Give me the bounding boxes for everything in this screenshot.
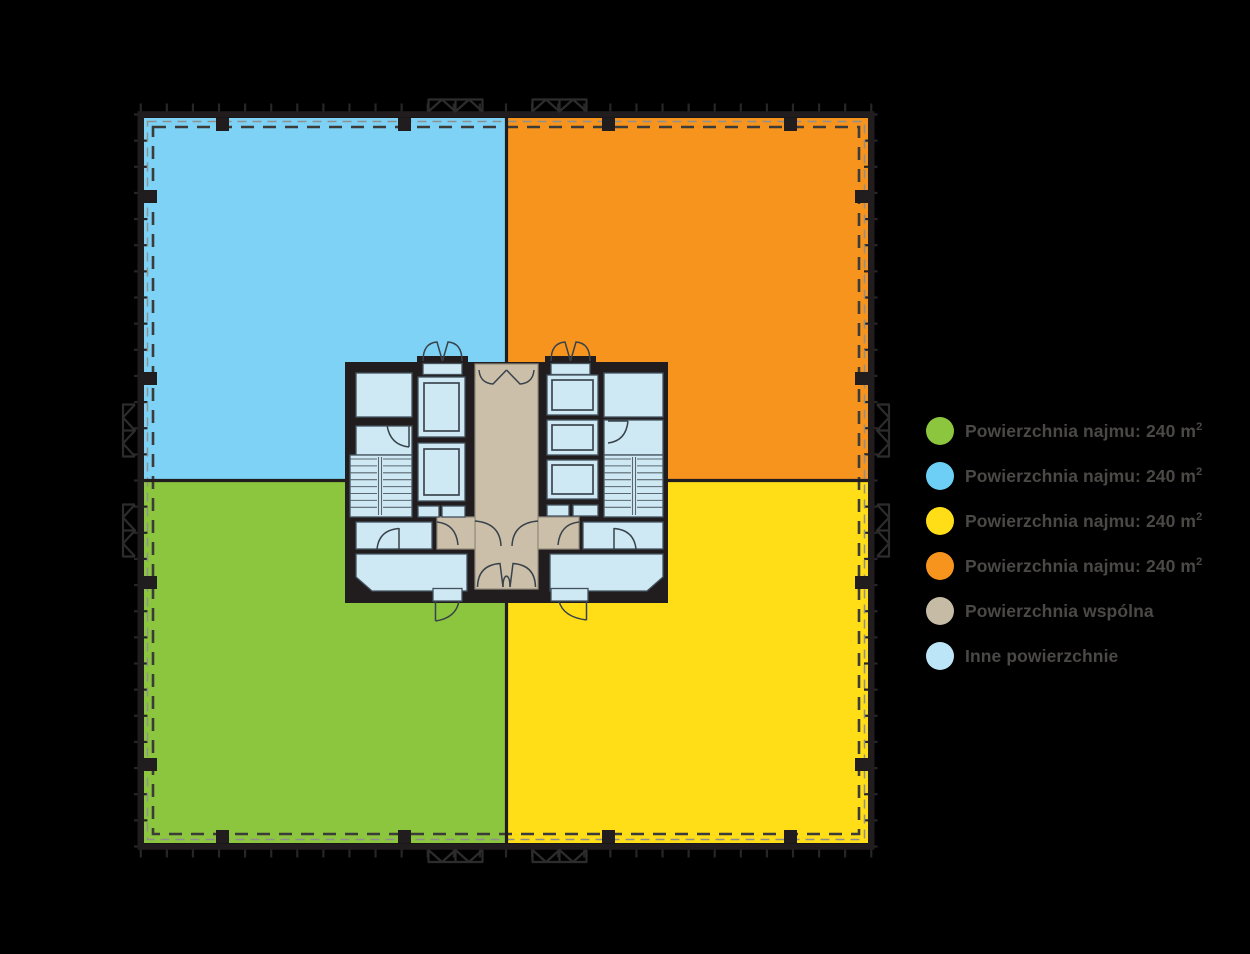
legend-label: Powierzchnia wspólna [965,597,1154,625]
room-left-3 [356,522,432,549]
legend-item-common-area: Powierzchnia wspólna [926,597,1202,625]
room-top-right [604,373,663,417]
elevators-right [547,375,598,516]
orange-circle-icon [926,552,954,580]
blue-circle-icon [926,462,954,490]
light-blue-circle-icon [926,642,954,670]
legend-item-rental-yellow: Powierzchnia najmu: 240 m2 [926,507,1202,535]
elevators-left [418,377,465,517]
legend-label: Powierzchnia najmu: 240 m2 [965,552,1202,580]
vestibule-left [437,517,475,549]
legend-label: Inne powierzchnie [965,642,1118,670]
legend-item-rental-orange: Powierzchnia najmu: 240 m2 [926,552,1202,580]
room-top-left [356,373,412,417]
green-circle-icon [926,417,954,445]
building-core [345,342,668,621]
beige-circle-icon [926,597,954,625]
legend-item-other-areas: Inne powierzchnie [926,642,1202,670]
legend-label: Powierzchnia najmu: 240 m2 [965,507,1202,535]
room-left-2 [356,426,412,455]
central-corridor [475,364,538,589]
room-bottom-left [356,554,467,591]
room-right-3 [583,522,663,549]
lobby-right [604,420,663,455]
legend-label: Powierzchnia najmu: 240 m2 [965,417,1202,445]
legend: Powierzchnia najmu: 240 m2 Powierzchnia … [926,417,1202,670]
legend-item-rental-blue: Powierzchnia najmu: 240 m2 [926,462,1202,490]
room-bottom-right [550,554,663,591]
yellow-circle-icon [926,507,954,535]
legend-label: Powierzchnia najmu: 240 m2 [965,462,1202,490]
legend-item-rental-green: Powierzchnia najmu: 240 m2 [926,417,1202,445]
